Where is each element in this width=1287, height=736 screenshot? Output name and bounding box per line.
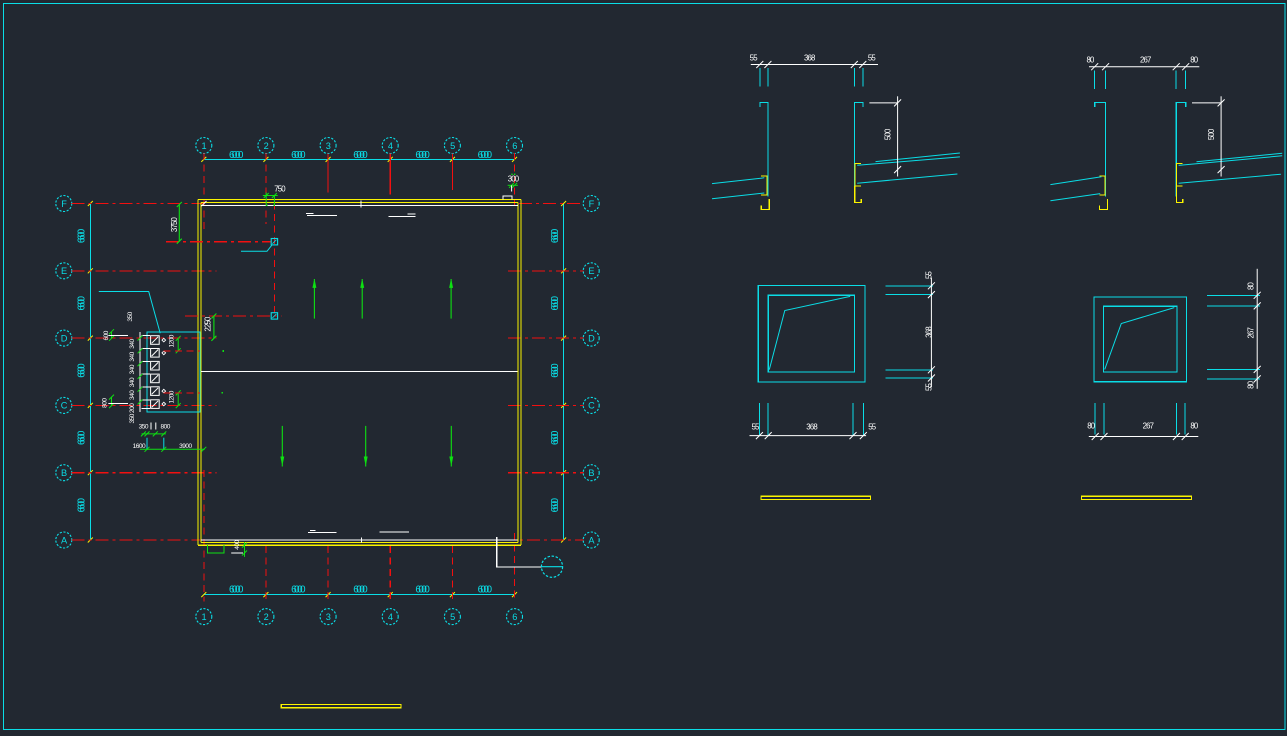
svg-text:300: 300 [508, 175, 520, 184]
svg-text:340: 340 [129, 364, 136, 374]
svg-text:267: 267 [1143, 422, 1154, 431]
svg-text:200: 200 [129, 403, 136, 413]
svg-text:1200: 1200 [169, 334, 176, 347]
svg-text:400: 400 [234, 539, 241, 549]
svg-text:E: E [588, 266, 594, 276]
svg-text:2: 2 [264, 141, 269, 151]
svg-text:350: 350 [129, 413, 136, 423]
svg-text:267: 267 [1247, 327, 1256, 338]
svg-text:500: 500 [884, 128, 893, 140]
svg-text:800: 800 [161, 424, 171, 431]
svg-text:B: B [61, 468, 67, 478]
svg-text:1: 1 [201, 612, 206, 622]
svg-text:2: 2 [264, 612, 269, 622]
svg-text:340: 340 [129, 339, 136, 349]
svg-text:350: 350 [127, 311, 134, 321]
svg-text:6: 6 [512, 141, 517, 151]
svg-text:2250: 2250 [204, 316, 213, 332]
svg-text:F: F [61, 199, 67, 209]
svg-text:350: 350 [139, 424, 149, 431]
svg-text:B: B [588, 468, 594, 478]
svg-text:267: 267 [1140, 56, 1151, 65]
svg-text:1200: 1200 [169, 390, 176, 403]
svg-text:5: 5 [450, 612, 455, 622]
svg-text:368: 368 [804, 54, 815, 63]
svg-text:1: 1 [201, 141, 206, 151]
svg-text:E: E [61, 266, 67, 276]
svg-text:500: 500 [1207, 128, 1216, 140]
svg-text:340: 340 [129, 377, 136, 387]
svg-text:D: D [61, 333, 68, 343]
svg-text:D: D [588, 333, 595, 343]
svg-text:C: C [588, 401, 595, 411]
svg-text:368: 368 [806, 423, 817, 432]
svg-text:3: 3 [326, 612, 331, 622]
svg-text:368: 368 [925, 327, 934, 338]
svg-text:3750: 3750 [170, 216, 179, 232]
svg-text:6: 6 [512, 612, 517, 622]
svg-text:4: 4 [388, 612, 393, 622]
svg-text:F: F [589, 199, 595, 209]
svg-text:800: 800 [102, 398, 109, 408]
svg-text:750: 750 [274, 184, 286, 193]
svg-text:3: 3 [326, 141, 331, 151]
svg-text:340: 340 [129, 390, 136, 400]
svg-text:4: 4 [388, 141, 393, 151]
svg-text:5: 5 [450, 141, 455, 151]
svg-text:C: C [61, 401, 68, 411]
svg-text:340: 340 [129, 351, 136, 361]
